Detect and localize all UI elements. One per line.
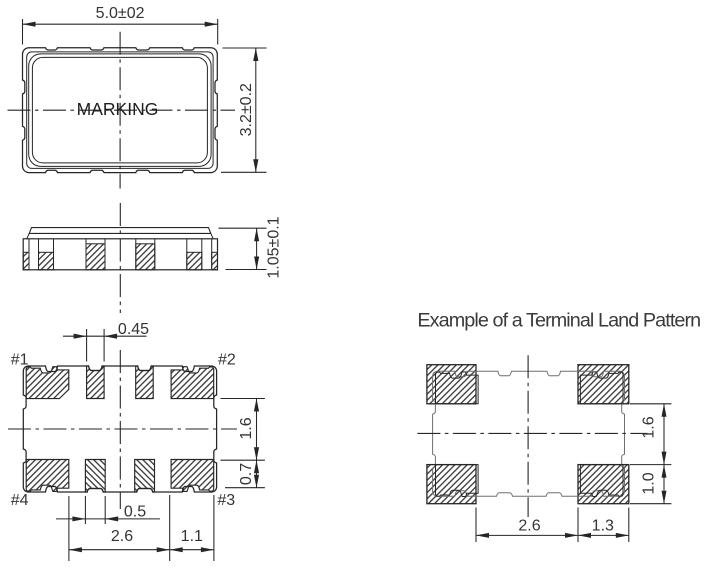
svg-text:1.1: 1.1 xyxy=(181,528,203,545)
svg-text:MARKING: MARKING xyxy=(77,99,159,119)
svg-text:1.6: 1.6 xyxy=(238,417,255,439)
svg-text:Example of a Terminal Land Pat: Example of a Terminal Land Pattern xyxy=(417,310,700,332)
svg-text:5.0±02: 5.0±02 xyxy=(96,5,145,22)
svg-text:#4: #4 xyxy=(11,492,29,509)
svg-text:#3: #3 xyxy=(217,492,235,509)
svg-text:1.0: 1.0 xyxy=(641,472,658,494)
svg-text:2.6: 2.6 xyxy=(518,518,540,535)
svg-text:#1: #1 xyxy=(11,352,29,369)
svg-text:3.2±0.2: 3.2±0.2 xyxy=(238,83,255,136)
svg-text:1.6: 1.6 xyxy=(641,416,658,438)
svg-text:#2: #2 xyxy=(218,352,236,369)
svg-text:0.7: 0.7 xyxy=(238,463,255,485)
svg-text:0.45: 0.45 xyxy=(118,321,149,338)
svg-text:2.6: 2.6 xyxy=(111,528,133,545)
svg-text:0.5: 0.5 xyxy=(124,504,146,521)
svg-text:1.3: 1.3 xyxy=(592,518,614,535)
svg-text:1.05±0.1: 1.05±0.1 xyxy=(265,216,282,278)
